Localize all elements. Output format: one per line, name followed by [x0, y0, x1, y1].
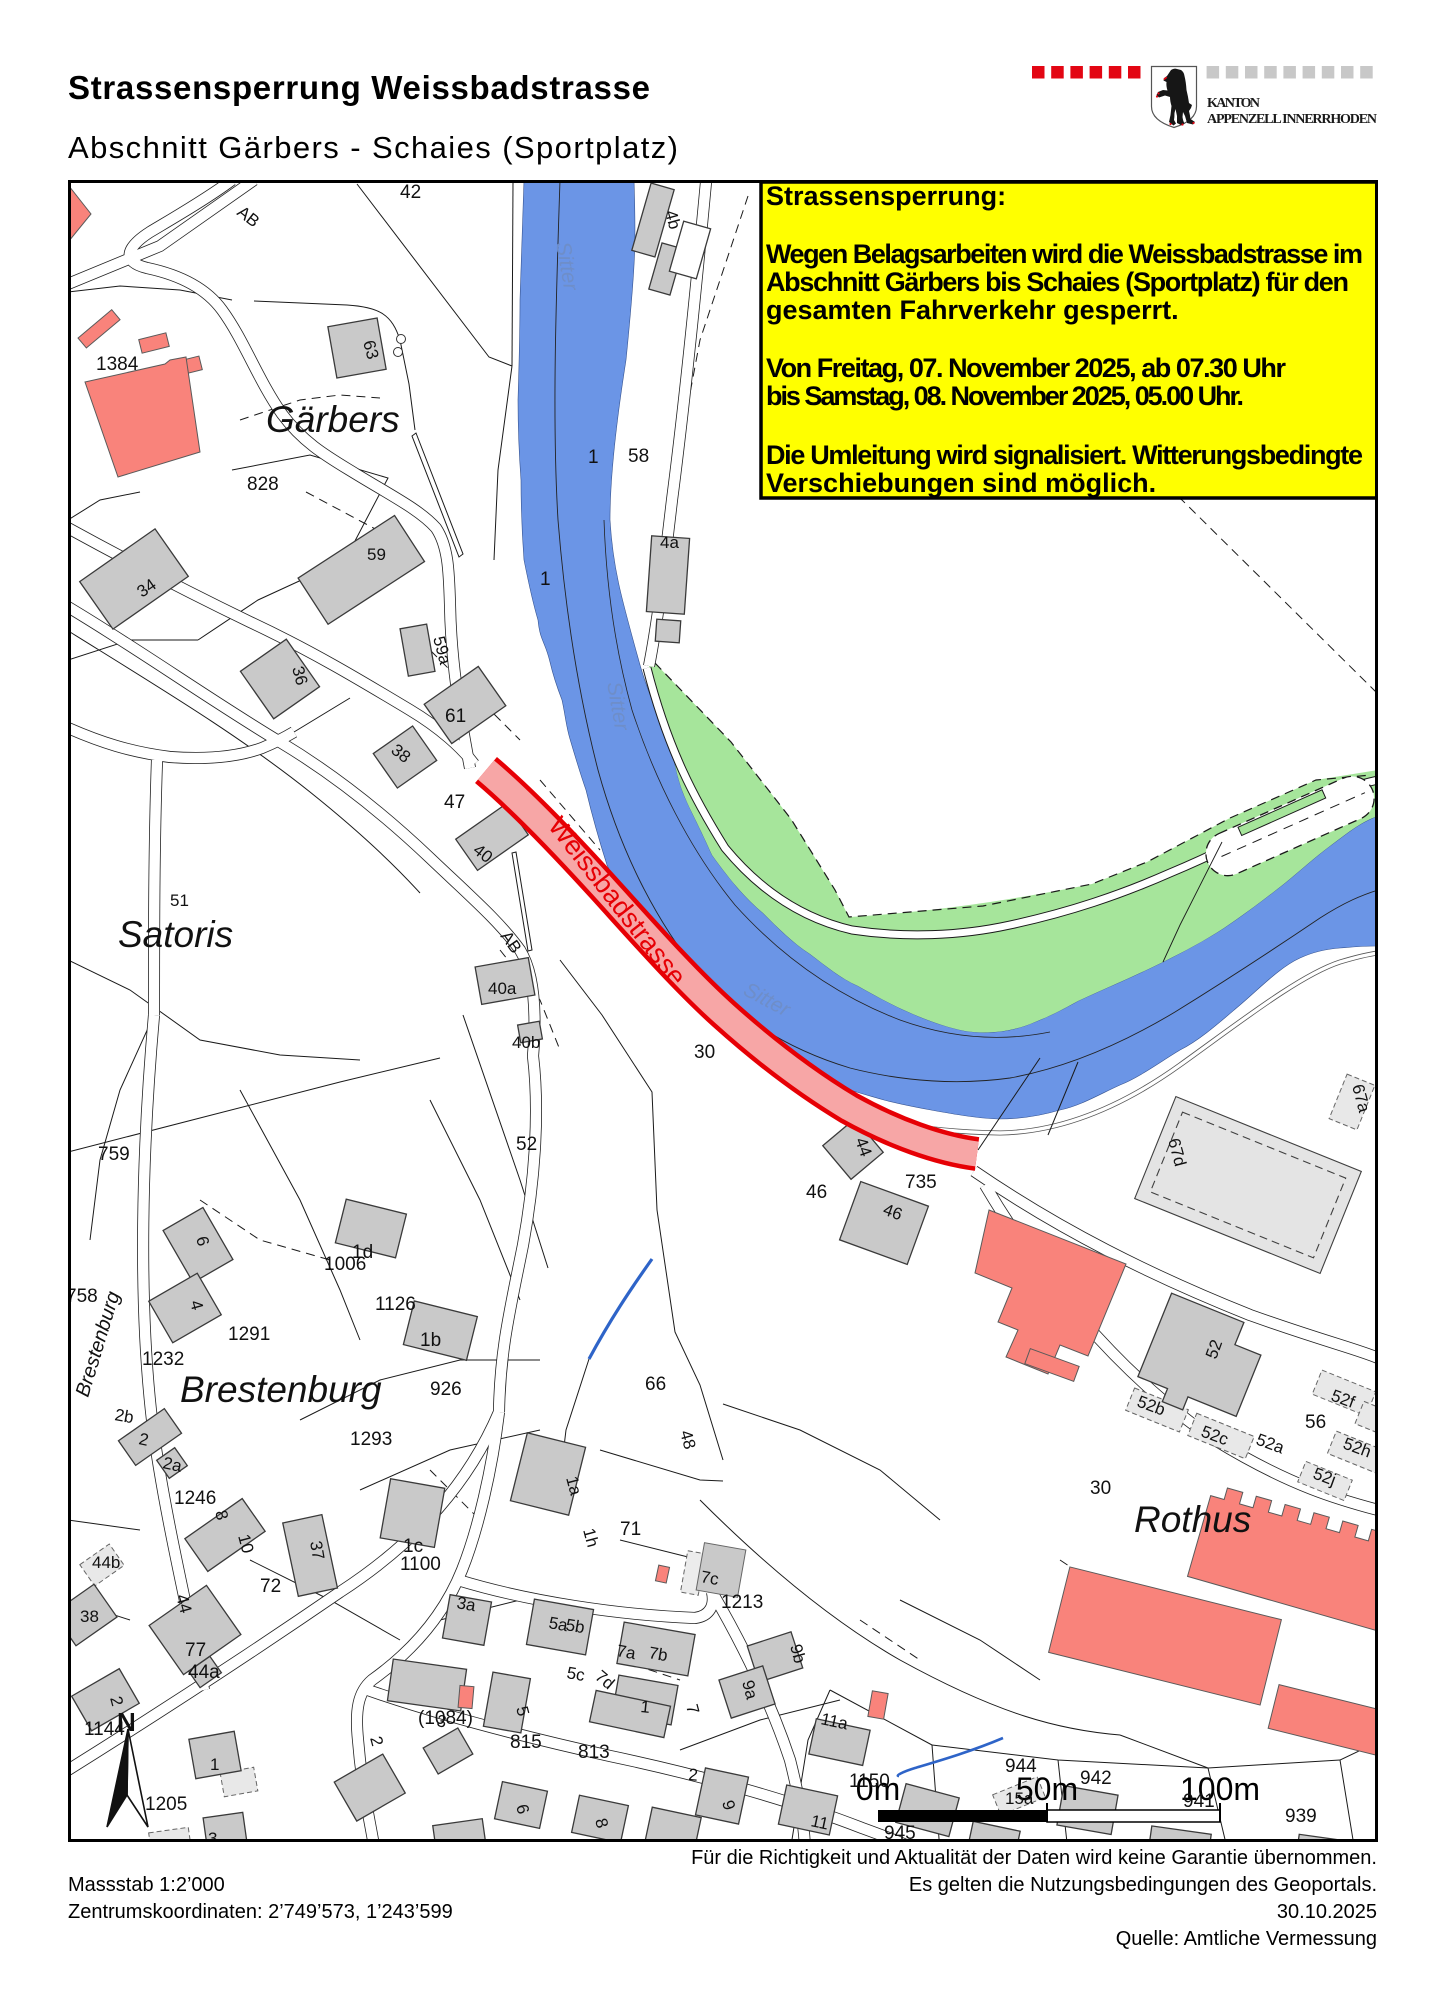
svg-text:38: 38	[80, 1607, 99, 1626]
svg-text:926: 926	[430, 1379, 462, 1400]
svg-text:1126: 1126	[375, 1294, 416, 1315]
svg-text:Abschnitt Gärbers - Schaies (S: Abschnitt Gärbers - Schaies (Sportplatz)	[68, 130, 678, 165]
svg-text:gesamten Fahrverkehr gesperrt.: gesamten Fahrverkehr gesperrt.	[766, 295, 1179, 325]
svg-text:1291: 1291	[228, 1324, 270, 1345]
svg-text:813: 813	[578, 1742, 610, 1763]
svg-text:939: 939	[1285, 1806, 1317, 1827]
svg-text:Strassensperrung Weissbadstras: Strassensperrung Weissbadstrasse	[68, 69, 650, 106]
svg-text:Satoris: Satoris	[118, 914, 233, 955]
svg-text:1: 1	[210, 1755, 219, 1774]
svg-text:30: 30	[1090, 1478, 1111, 1499]
svg-text:4a: 4a	[660, 533, 679, 552]
svg-text:941: 941	[1183, 1791, 1215, 1812]
svg-text:Verschiebungen sind möglich.: Verschiebungen sind möglich.	[766, 468, 1156, 498]
svg-text:828: 828	[247, 474, 279, 495]
svg-text:Brestenburg: Brestenburg	[180, 1369, 382, 1410]
svg-text:1b: 1b	[420, 1330, 441, 1351]
svg-text:2b: 2b	[113, 1405, 135, 1427]
svg-text:7a: 7a	[615, 1641, 637, 1663]
svg-text:7c: 7c	[699, 1567, 720, 1589]
svg-text:58: 58	[628, 446, 649, 467]
svg-text:52: 52	[516, 1134, 537, 1155]
svg-text:72: 72	[260, 1576, 281, 1597]
svg-text:1150: 1150	[849, 1771, 890, 1792]
svg-text:bis Samstag, 08. November 2025: bis Samstag, 08. November 2025, 05.00 Uh…	[766, 381, 1244, 411]
svg-text:40a: 40a	[488, 979, 517, 998]
svg-text:66: 66	[645, 1374, 666, 1395]
svg-text:Es gelten die Nutzungsbedingun: Es gelten die Nutzungsbedingungen des Ge…	[909, 1874, 1377, 1896]
svg-text:40b: 40b	[512, 1033, 540, 1052]
svg-text:3a: 3a	[455, 1593, 477, 1615]
svg-text:37: 37	[306, 1539, 328, 1561]
svg-text:Die Umleitung wird signalisier: Die Umleitung wird signalisiert. Witteru…	[766, 440, 1363, 470]
svg-text:Von Freitag, 07. November 2025: Von Freitag, 07. November 2025, ab 07.30…	[766, 353, 1286, 383]
svg-text:7b: 7b	[647, 1643, 669, 1665]
svg-text:Strassensperrung:: Strassensperrung:	[766, 181, 1006, 211]
svg-text:30.10.2025: 30.10.2025	[1277, 1901, 1377, 1923]
svg-text:1: 1	[540, 569, 551, 590]
svg-text:1246: 1246	[174, 1488, 216, 1509]
svg-text:44a: 44a	[188, 1662, 220, 1683]
svg-text:1213: 1213	[721, 1592, 763, 1613]
svg-text:1144: 1144	[84, 1719, 125, 1740]
svg-text:Wegen Belagsarbeiten wird die: Wegen Belagsarbeiten wird die Weissbadst…	[766, 239, 1363, 269]
svg-text:1232: 1232	[142, 1349, 184, 1370]
svg-text:51: 51	[170, 891, 189, 910]
svg-text:30: 30	[694, 1042, 715, 1063]
svg-text:759: 759	[98, 1144, 130, 1165]
svg-text:56: 56	[1305, 1412, 1326, 1433]
svg-text:1d: 1d	[352, 1242, 373, 1263]
svg-text:Rothus: Rothus	[1134, 1499, 1251, 1540]
svg-text:5c: 5c	[565, 1663, 586, 1685]
svg-text:1100: 1100	[400, 1554, 441, 1575]
svg-text:Massstab 1:2’000: Massstab 1:2’000	[68, 1874, 225, 1896]
svg-text:44b: 44b	[92, 1553, 120, 1572]
svg-text:46: 46	[806, 1182, 827, 1203]
svg-text:71: 71	[620, 1519, 641, 1540]
svg-text:42: 42	[400, 182, 421, 203]
svg-text:59: 59	[367, 545, 386, 564]
svg-text:735: 735	[905, 1172, 937, 1193]
svg-text:1: 1	[640, 1697, 651, 1717]
svg-text:1384: 1384	[96, 354, 139, 375]
svg-text:815: 815	[510, 1732, 542, 1753]
svg-text:944: 944	[1005, 1756, 1037, 1777]
svg-text:Quelle: Amtliche Vermessung: Quelle: Amtliche Vermessung	[1116, 1928, 1377, 1950]
svg-text:Gärbers: Gärbers	[266, 399, 400, 440]
svg-text:1205: 1205	[145, 1794, 187, 1815]
svg-text:2: 2	[688, 1765, 699, 1785]
svg-text:APPENZELL INNERRHODEN: APPENZELL INNERRHODEN	[1207, 112, 1377, 127]
svg-text:Zentrumskoordinaten: 2’749’573: Zentrumskoordinaten: 2’749’573, 1’243’59…	[68, 1901, 453, 1923]
svg-text:942: 942	[1080, 1768, 1112, 1789]
svg-text:61: 61	[445, 706, 466, 727]
svg-text:1293: 1293	[350, 1429, 392, 1450]
svg-text:47: 47	[444, 792, 465, 813]
svg-text:77: 77	[185, 1640, 206, 1661]
svg-text:Abschnitt Gärbers bis Schaies: Abschnitt Gärbers bis Schaies (Sportplat…	[766, 267, 1349, 297]
svg-text:Für die Richtigkeit und Aktual: Für die Richtigkeit und Aktualität der D…	[691, 1847, 1377, 1869]
svg-text:KANTON: KANTON	[1207, 96, 1260, 111]
svg-text:1: 1	[588, 447, 599, 468]
svg-text:5b: 5b	[564, 1615, 586, 1637]
svg-text:15a: 15a	[1005, 1789, 1034, 1808]
